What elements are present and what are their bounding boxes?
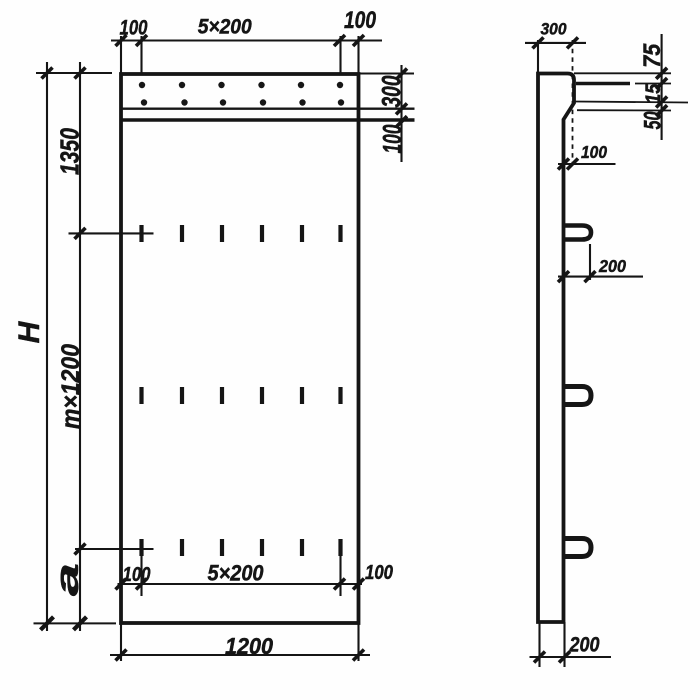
- svg-text:1350: 1350: [55, 128, 85, 175]
- svg-text:100: 100: [123, 564, 151, 586]
- svg-text:100: 100: [377, 124, 407, 153]
- svg-text:a: a: [49, 563, 85, 596]
- svg-text:75: 75: [639, 43, 666, 68]
- svg-text:5×200: 5×200: [198, 14, 252, 38]
- svg-text:100: 100: [344, 7, 377, 34]
- svg-text:5×200: 5×200: [208, 561, 265, 586]
- svg-text:50: 50: [640, 111, 667, 129]
- svg-text:200: 200: [598, 256, 626, 276]
- svg-text:100: 100: [120, 16, 148, 40]
- svg-text:200: 200: [569, 634, 600, 657]
- svg-text:300: 300: [541, 20, 567, 39]
- svg-text:100: 100: [365, 562, 393, 584]
- svg-text:H: H: [13, 320, 46, 343]
- svg-text:m×1200: m×1200: [57, 344, 85, 429]
- svg-text:1200: 1200: [225, 633, 273, 659]
- svg-text:300: 300: [376, 75, 406, 107]
- svg-text:100: 100: [581, 142, 607, 162]
- svg-text:15: 15: [641, 83, 665, 104]
